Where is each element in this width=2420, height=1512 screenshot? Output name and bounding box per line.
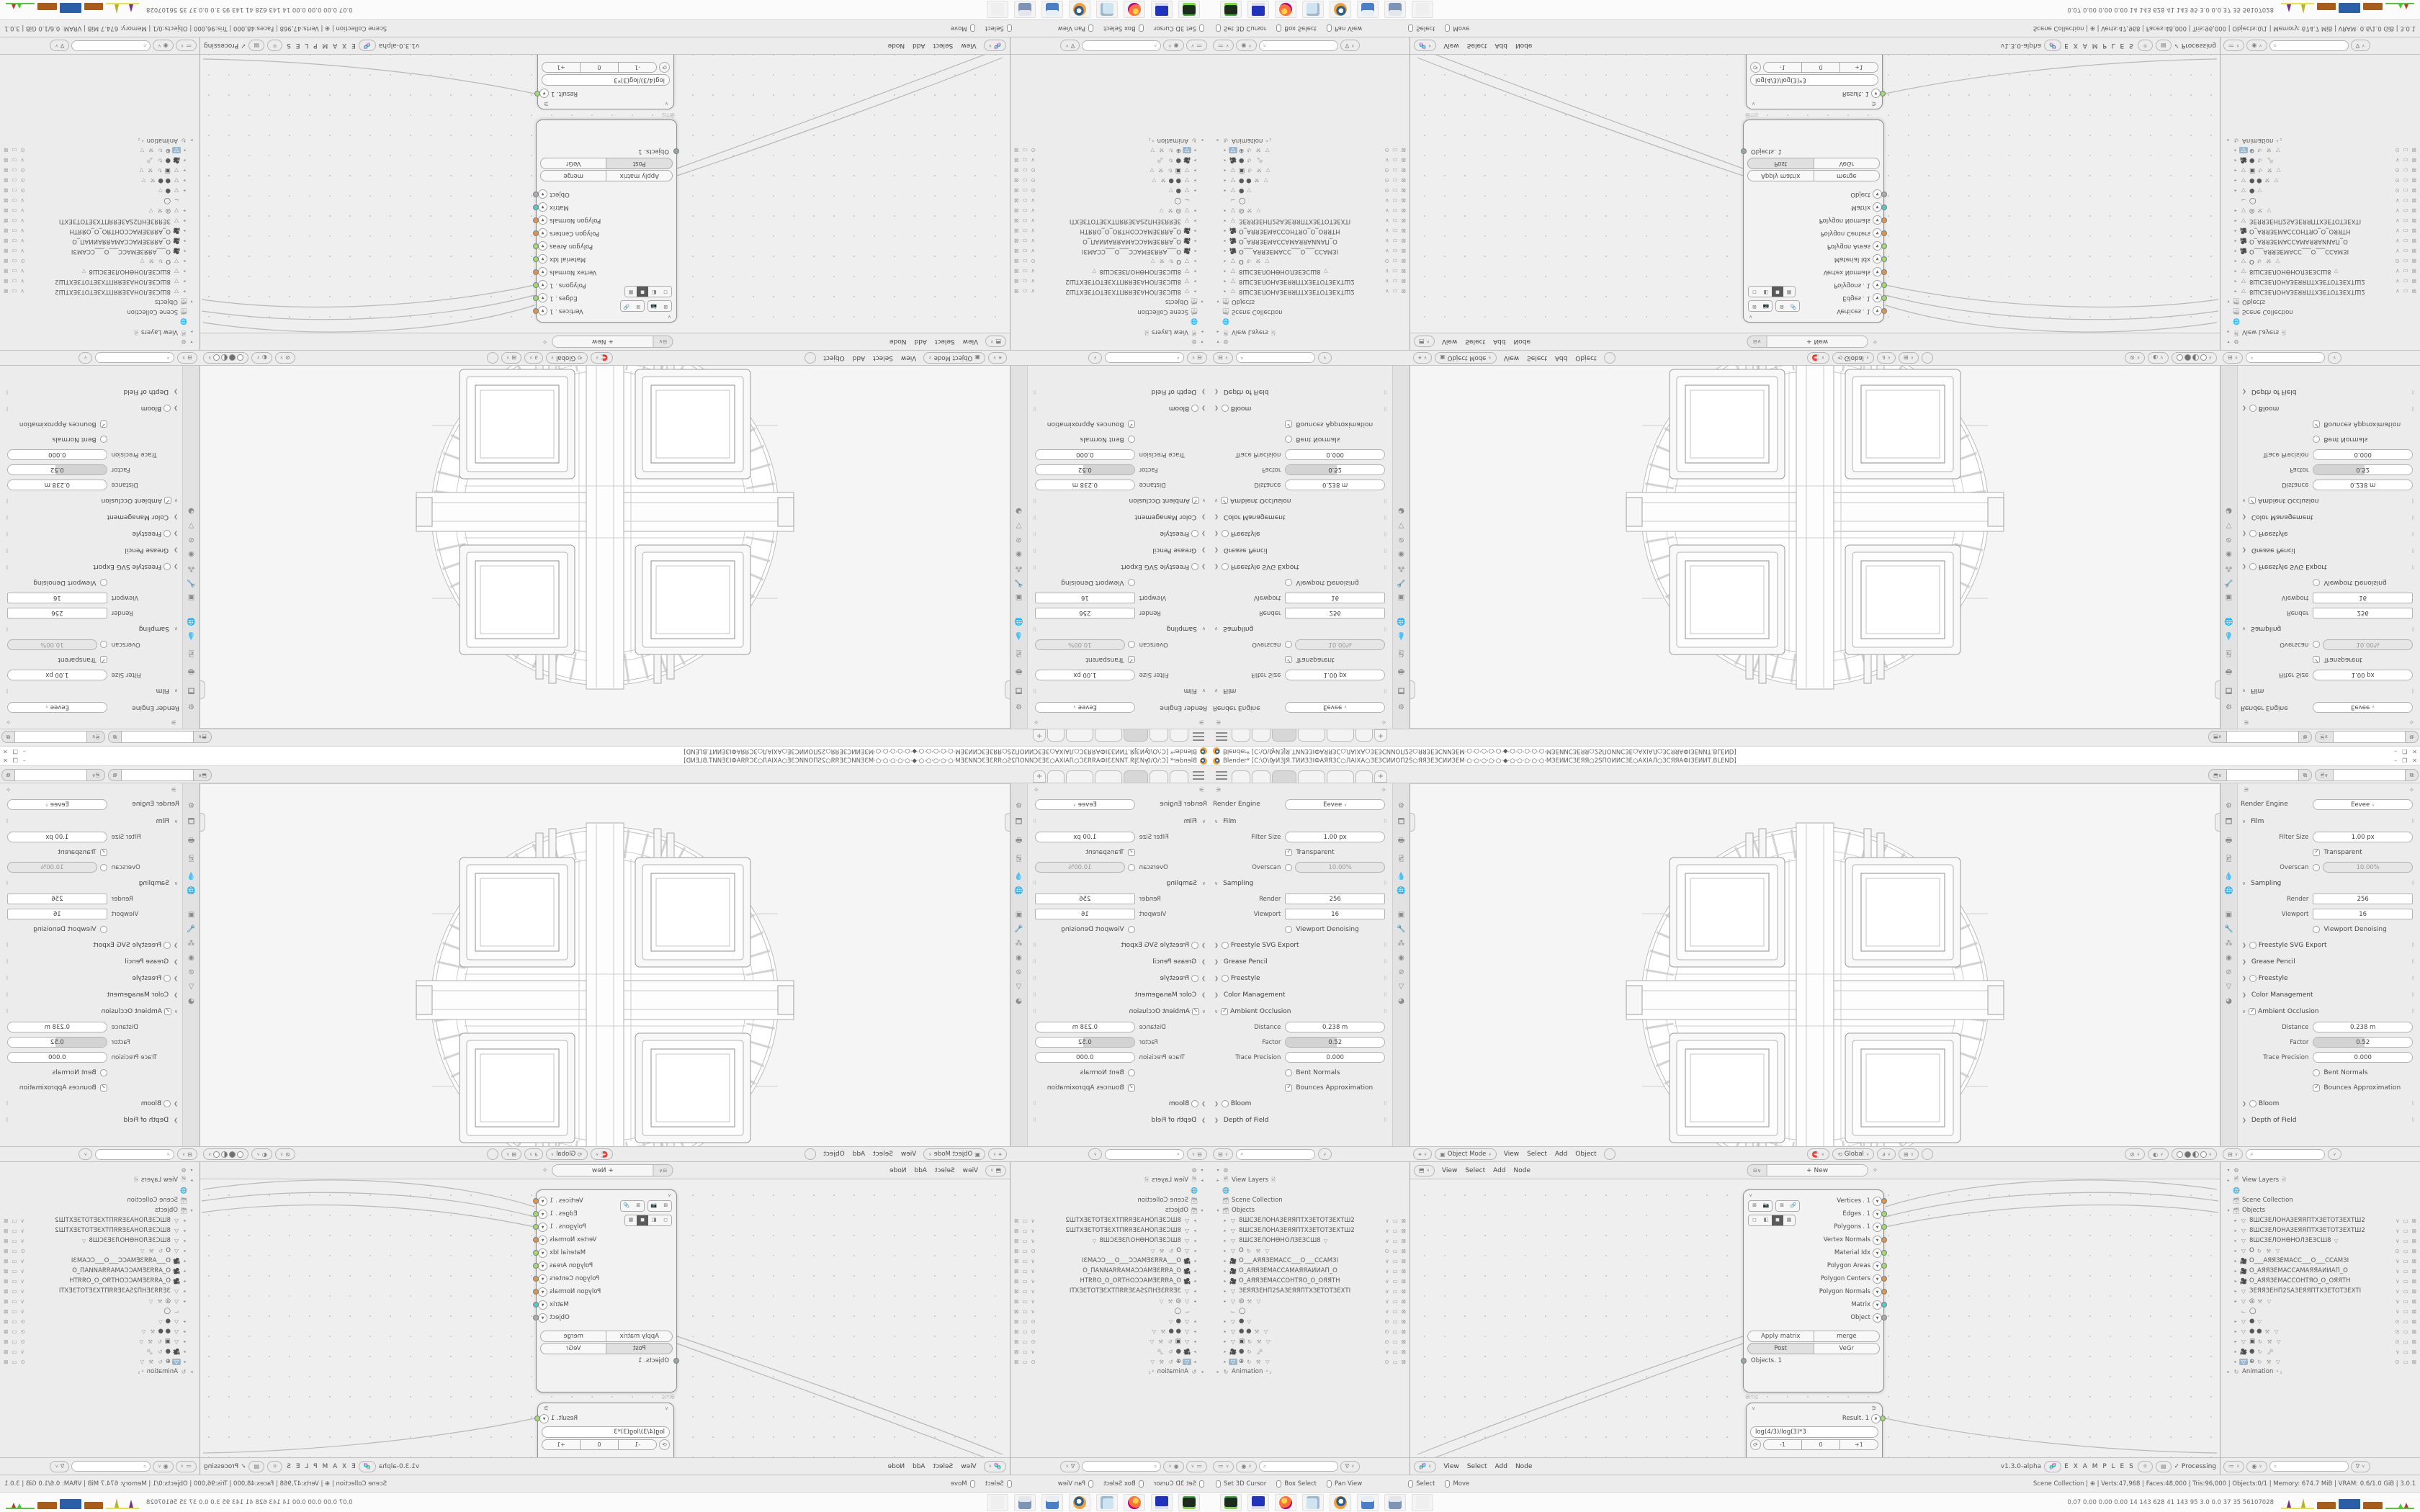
draft-toggle[interactable]: ▤ (248, 40, 264, 52)
outliner-animation-row[interactable]: ▸↻Animation⁴₂ (1, 1367, 195, 1377)
live-update-toggle[interactable]: ⚛ (2138, 40, 2153, 52)
menu-hamburger-icon[interactable] (1216, 771, 1227, 780)
checkbox-bent-normals[interactable]: Bent Normals (2313, 436, 2367, 444)
objects-output-socket[interactable]: Objects. 1 (1744, 1355, 1883, 1367)
outliner-object-row[interactable]: ▸▽ЗЕЯЯЗЕНП2ЅАЗЕЯЯПТХЗЕТОТЗЕХТІ∨▭⊠ (1, 216, 195, 226)
outliner-object-row[interactable]: ▸▽◎⚒ ▽∨▭⊠ (1214, 206, 1408, 216)
funnel-filter-button[interactable]: ∇∨ (2351, 1461, 2370, 1472)
properties-tab-icon[interactable]: ⊘ (2226, 536, 2231, 544)
outliner-object-row[interactable]: ▸▽8ШСЗЕЛОНАЗЕЯЯПТХЗЕТОТЗЕХТШ2∨▭⊠ (1012, 276, 1206, 287)
properties-tab-icon[interactable]: 🗖 (1016, 816, 1023, 829)
id-filter-button[interactable]: ◉∨ (2246, 40, 2267, 52)
node-output-polygon-centers[interactable]: Polygon Centers▼ (537, 1272, 645, 1285)
properties-tab-icon[interactable]: 💧 (1397, 873, 1405, 881)
viewport-3d[interactable] (1410, 783, 2220, 1146)
node-button-post[interactable]: Post (606, 158, 673, 169)
outliner-object-row[interactable]: ▸🎥О_АЯЯЗЕМАССАМАЯЯАИИАП_О∨▭⊠ (1, 1266, 195, 1276)
outliner-object-row[interactable]: ▸▽◎⚒ ▽∨▭⊠ (2225, 206, 2419, 216)
gizmo-toggle[interactable]: ⊞∨ (1899, 1148, 1919, 1160)
outliner-object-row[interactable]: ▸▽⊕↻ ⚒ ▽⊙▭⊠ (1214, 1356, 1408, 1367)
checkbox-transparent[interactable]: Transparent (1085, 657, 1134, 664)
number-node[interactable]: ∨ ⚞ Result. 1 ▼ log(4/3)/log(3)*3 ⟳ -10+… (537, 1403, 674, 1466)
panel-section-ambient-occlusion[interactable]: ∨Ambient Occlusion⠿ (1210, 492, 1392, 509)
node-output-vertices[interactable]: Vertices. 1▼ (537, 1194, 645, 1207)
funnel-filter-button[interactable]: ∇∨ (2351, 40, 2370, 52)
node-output-matrix[interactable]: Matrix▼ (537, 201, 645, 214)
field-overscan[interactable]: 10.00% (7, 639, 97, 650)
output-socket[interactable] (1881, 1224, 1887, 1230)
node-button-vegr[interactable]: VeGr (1814, 158, 1881, 169)
taskbar-app-terminal[interactable] (1178, 1, 1200, 19)
formula-input[interactable]: log(4/3)/log(3)*3 (1750, 1426, 1878, 1438)
outliner-filter-toggle[interactable]: ∨ (1088, 1148, 1101, 1160)
stepper-button-0[interactable]: 0 (580, 62, 618, 73)
number-stepper[interactable]: ⟳ -10+1 (1750, 62, 1878, 73)
properties-tab-icon[interactable]: ▣ (188, 911, 194, 919)
output-socket[interactable] (1881, 1211, 1887, 1217)
outliner-object-row[interactable]: ▸▽8ШСЗЕЛОНАЗЕЯЯПТХЗЕТОТЗЕХТШ2∨▭⊠ (1012, 1225, 1206, 1236)
taskbar-app-notepad[interactable] (1302, 1494, 1324, 1511)
outliner-scene-row[interactable]: ▾🗃Objects (1012, 1205, 1206, 1215)
properties-tab-icon[interactable]: 🔧 (187, 579, 195, 587)
mode-dropdown[interactable]: ▣Object Mode∨ (923, 1148, 985, 1160)
filter-search-input[interactable]: ⌕ (2269, 1461, 2349, 1472)
viewport-sidebar-toggle[interactable] (1005, 680, 1010, 699)
outliner-object-row[interactable]: ▸▽● ●⚒ ▽⊙▭⊠ (1012, 1326, 1206, 1336)
field-factor[interactable]: 0.52 (2313, 464, 2413, 475)
live-update-toggle[interactable]: ⚛ (267, 1461, 282, 1472)
collapse-chevron-icon[interactable]: ∨ (1749, 314, 1752, 320)
viewport-3d[interactable] (200, 366, 1010, 729)
properties-tab-icon[interactable]: ◕ (2226, 507, 2232, 515)
field-overscan[interactable]: 10.00% (1295, 862, 1385, 873)
field-distance[interactable]: 0.238 m (1285, 480, 1385, 490)
properties-nav-tabs[interactable]: ⚙🗖🖶🖻💧🌐▣🔧⁂◉⊘▽◕ (2220, 366, 2238, 729)
number-node[interactable]: ∨ ⚞ Result. 1 ▼ log(4/3)/log(3)*3 ⟳ -10+… (537, 46, 674, 109)
taskbar-app-dosbox[interactable] (1151, 1494, 1173, 1511)
field-distance[interactable]: 0.238 m (7, 480, 107, 490)
view-layer-selector[interactable]: 🖻∨⧉ (1, 731, 105, 743)
outliner-scene-row[interactable]: 🗃Scene Collection (2225, 307, 2419, 317)
output-socket[interactable] (1881, 1276, 1887, 1282)
node-button-vegr[interactable]: VeGr (540, 158, 606, 169)
panel-section-film[interactable]: ∨Film⠿ (1028, 683, 1210, 699)
outliner-filter-toggle[interactable]: ∨ (79, 1148, 91, 1160)
view-layer-selector[interactable]: 🖻∨⧉ (1, 769, 105, 781)
outliner-object-row[interactable]: ▸▽8ШСЗЕЛОНАЗЕЯЯПТХЗЕТОТЗЕХТШ2∨▭⊠ (2225, 287, 2419, 297)
outliner-filter-toggle[interactable]: ∨ (1318, 352, 1331, 364)
properties-tab-icon[interactable]: ▽ (189, 983, 194, 991)
panel-section-ambient-occlusion[interactable]: ∨Ambient Occlusion⠿ (2238, 1003, 2420, 1020)
panel-section-ambient-occlusion[interactable]: ∨Ambient Occlusion⠿ (1028, 1003, 1210, 1020)
outliner-search-input[interactable]: ⌕ (1236, 1149, 1315, 1160)
panel-collapsed-grease-pencil[interactable]: ❯Grease Pencil⠿ (1210, 542, 1392, 559)
viewport-sidebar-toggle[interactable] (200, 680, 205, 699)
properties-tab-icon[interactable]: ⊘ (1016, 536, 1021, 544)
node-button-apply-matrix[interactable]: Apply matrix (1747, 170, 1814, 181)
field-distance[interactable]: 0.238 m (1035, 480, 1135, 490)
objects-in-node[interactable]: ∨ ⊠📷 ⊠🔗 ◻◧◼▦ Vertices. 1▼Edges. 1▼Polygo… (1743, 120, 1884, 323)
outliner-scene-row[interactable]: ▾🗃Objects (1214, 1205, 1408, 1215)
properties-tab-icon[interactable]: 🌐 (2224, 887, 2233, 895)
outliner-object-row[interactable]: ▸▽● ●⚒ ▽⊙▭⊠ (2225, 1326, 2419, 1336)
node-editor-menus[interactable]: ViewSelectAddNode (1439, 1463, 1536, 1470)
outliner-object-row[interactable]: ▸▽◎⚒ ▽∨▭⊠ (1, 1296, 195, 1306)
cycle-button[interactable]: ⟳ (659, 62, 670, 73)
outliner-search-input[interactable]: ⌕ (95, 1149, 174, 1160)
properties-tab-icon[interactable]: 🗖 (2226, 683, 2233, 696)
outliner-filter-toggle[interactable]: ∨ (1318, 1148, 1331, 1160)
add-workspace-button[interactable]: + (1374, 729, 1387, 742)
number-node[interactable]: ∨ ⚞ Result. 1 ▼ log(4/3)/log(3)*3 ⟳ -10+… (1746, 46, 1883, 109)
outliner-object-row[interactable]: ▸▽●▽⊙▭⊠ (1012, 1316, 1206, 1326)
node-button-post[interactable]: Post (606, 1343, 673, 1354)
outliner-object-row[interactable]: ▸▽O↻ ⚒ ▽⊙▭⊠ (1, 256, 195, 266)
properties-tab-icon[interactable]: ⊘ (1016, 968, 1021, 976)
workspace-tab-1[interactable] (1170, 729, 1188, 742)
objects-in-node[interactable]: ∨ ⊠📷 ⊠🔗 ◻◧◼▦ Vertices. 1▼Edges. 1▼Polygo… (536, 1189, 677, 1392)
funnel-filter-button[interactable]: ∇∨ (1060, 1461, 1080, 1472)
panel-section-ambient-occlusion[interactable]: ∨Ambient Occlusion⠿ (0, 492, 182, 509)
new-tree-button[interactable]: + New (1767, 1164, 1868, 1176)
outliner-object-row[interactable]: ▸▽O↻ ⚒ ▽⊙▭⊠ (1012, 1246, 1206, 1256)
outliner-object-row[interactable]: ▸▽8ШСЗЕЛОНѲНОЛЗЕЗСШ8▽∨▭⊠ (1214, 1236, 1408, 1246)
outliner-animation-row[interactable]: ▸↻Animation⁴₂ (1012, 1367, 1206, 1377)
panel-collapsed-grease-pencil[interactable]: ❯Grease Pencil⠿ (0, 542, 182, 559)
filter-search-input[interactable]: ⌕ (1259, 1461, 1338, 1472)
outliner-scene-row[interactable]: ▸🖻View Layers🖻 (1, 1175, 195, 1185)
field-factor[interactable]: 0.52 (7, 1037, 107, 1048)
node-output-polygon-normals[interactable]: Polygon Normals▼ (537, 214, 645, 227)
node-output-material-idx[interactable]: Material Idx▼ (1775, 1246, 1883, 1259)
outliner-object-row[interactable]: ▸▽◎⚒ ▽∨▭⊠ (1214, 1296, 1408, 1306)
taskbar-app-calculator[interactable] (1357, 1, 1379, 19)
panel-section-sampling[interactable]: ∨Sampling⠿ (1210, 621, 1392, 637)
outliner-object-row[interactable]: ▸▽●▽⊙▭⊠ (2225, 186, 2419, 196)
outliner-scene-row[interactable]: 🌐 (1012, 317, 1206, 327)
panel-section-film[interactable]: ∨Film⠿ (0, 683, 182, 699)
outliner-scene-row[interactable]: 🌐 (1012, 1185, 1206, 1195)
panel-section-sampling[interactable]: ∨Sampling⠿ (0, 621, 182, 637)
properties-tab-icon[interactable]: ◉ (1016, 550, 1022, 558)
output-socket[interactable] (1881, 1289, 1887, 1295)
node-output-polygon-areas[interactable]: Polygon Areas▼ (537, 240, 645, 253)
outliner-scene-row[interactable]: 🗃Scene Collection (1012, 307, 1206, 317)
outliner-scene-row[interactable]: ▾⚙ (2225, 1165, 2419, 1175)
node-output-vertices[interactable]: Vertices. 1▼ (1775, 1194, 1883, 1207)
node-button-merge[interactable]: merge (540, 170, 606, 181)
panel-collapsed-bloom[interactable]: ❯Bloom⠿ (0, 400, 182, 417)
output-socket[interactable] (1881, 1263, 1887, 1269)
taskbar-app-blender[interactable] (1330, 1, 1351, 19)
properties-tab-icon[interactable]: 🔧 (2224, 579, 2233, 587)
outliner-object-row[interactable]: ▸▽ЗЕЯЯЗЕНП2ЅАЗЕЯЯПТХЗЕТОТЗЕХТІ∨▭⊠ (1012, 216, 1206, 226)
checkbox-bounces-approximation[interactable]: Bounces Approximation (1285, 1084, 1373, 1092)
outliner-object-row[interactable]: ▸▽8ШСЗЕЛОНАЗЕЯЯПТХЗЕТОТЗЕХТШ2∨▭⊠ (1012, 1215, 1206, 1225)
editor-type-button[interactable]: ⬒∨ (1414, 336, 1435, 348)
outliner-search-input[interactable]: ⌕ (1236, 353, 1315, 364)
node-editor[interactable]: ⬒∨ ViewSelectAddNode ⊟∨ + New ✧ (1410, 37, 2220, 350)
outliner-object-row[interactable]: ▸🎥●↻ 🗝∨▭⊠ (2225, 156, 2419, 166)
output-socket[interactable] (1881, 308, 1887, 314)
outliner-object-row[interactable]: ▸🎥О___АЯЯЗЕМАСС___О___ССАМЗІ∨▭⊠ (1214, 1256, 1408, 1266)
checkbox-viewport-denoising[interactable]: Viewport Denoising (33, 926, 107, 933)
properties-tab-icon[interactable]: 🌐 (187, 617, 195, 625)
output-socket[interactable] (1881, 192, 1887, 197)
funnel-filter-button[interactable]: ∇∨ (1340, 40, 1360, 52)
node-output-polygons[interactable]: Polygons. 1▼ (1775, 1220, 1883, 1233)
workspace-tab-4[interactable] (1298, 729, 1325, 742)
properties-tab-icon[interactable]: 🗖 (1016, 683, 1023, 696)
workspace-tab-5[interactable] (1327, 770, 1354, 783)
checkbox-bounces-approximation[interactable]: Bounces Approximation (19, 1084, 107, 1092)
field-trace-precision[interactable]: 0.000 (7, 1052, 107, 1063)
id-filter-button[interactable]: ◉∨ (1163, 1461, 1183, 1472)
outliner-object-row[interactable]: ⌙◯∨▭⊠ (2225, 1306, 2419, 1316)
collapse-chevron-icon[interactable]: ∨ (1752, 1405, 1755, 1411)
properties-tab-icon[interactable]: ⁂ (1016, 940, 1023, 948)
node-editor-menus[interactable]: ViewSelectAddNode (885, 1167, 982, 1174)
checkbox-viewport-denoising[interactable]: Viewport Denoising (1061, 926, 1134, 933)
stepper-button-+1[interactable]: +1 (542, 1439, 580, 1450)
node-tree-selector[interactable]: ⊟∨ + New ✧ (542, 1164, 673, 1176)
properties-tab-icon[interactable]: ◕ (1398, 997, 1404, 1005)
outliner-scene-row[interactable]: 🌐 (1214, 1185, 1408, 1195)
output-socket[interactable] (1881, 295, 1887, 301)
stepper-button-+1[interactable]: +1 (542, 62, 580, 73)
outliner-scene-row[interactable]: 🌐 (1, 317, 195, 327)
outliner-scene-row[interactable]: 🌐 (2225, 1185, 2419, 1195)
node-output-polygon-areas[interactable]: Polygon Areas▼ (1775, 240, 1883, 253)
outliner-object-row[interactable]: ▸🎥О___АЯЯЗЕМАСС___О___ССАМЗІ∨▭⊠ (1, 246, 195, 256)
field-distance[interactable]: 0.238 m (2313, 480, 2413, 490)
outliner-scene-row[interactable]: ▸🖻View Layers🖻 (1012, 1175, 1206, 1185)
field-render[interactable]: 256 (7, 608, 107, 618)
properties-tab-icon[interactable]: 🔧 (2224, 925, 2233, 933)
field-filter-size[interactable]: 1.00 px (7, 670, 107, 680)
outliner-scene-row[interactable]: ▾🗃Objects (1012, 297, 1206, 307)
taskbar-app-calculator[interactable] (1357, 1494, 1379, 1511)
taskbar-app-ghost[interactable] (1412, 1, 1433, 19)
draft-toggle[interactable]: ▤ (2156, 40, 2172, 52)
checkbox-bent-normals[interactable]: Bent Normals (2313, 1069, 2367, 1076)
stepper-button-0[interactable]: 0 (1802, 1439, 1840, 1450)
outliner-object-row[interactable]: ▸▽◎⚒ ▽∨▭⊠ (2225, 1296, 2419, 1306)
xray-toggle[interactable]: ◐∨ (2148, 352, 2168, 364)
outliner-object-row[interactable]: ▸🎥●↻ 🗝∨▭⊠ (2225, 1346, 2419, 1356)
editor-type-button[interactable]: ⚹∨ (1413, 352, 1432, 364)
checkbox-bent-normals[interactable]: Bent Normals (1285, 1069, 1340, 1076)
properties-tab-icon[interactable]: ◕ (1398, 507, 1404, 515)
checkbox-viewport-denoising[interactable]: Viewport Denoising (1285, 580, 1358, 587)
panel-collapsed-depth-of-field[interactable]: ❯Depth of Field⠿ (1210, 384, 1392, 400)
outliner-object-row[interactable]: ▸🎥●↻ 🗝∨▭⊠ (1012, 1346, 1206, 1356)
outliner-object-row[interactable]: ▸▽⊕↻ ⚒ ▽⊙▭⊠ (1214, 145, 1408, 156)
outliner-object-row[interactable]: ▸🎥О_АЯЯЗЕМАССАМАЯЯАИИАП_О∨▭⊠ (1214, 236, 1408, 246)
node-editor[interactable]: ⬒∨ ViewSelectAddNode ⊟∨ + New ✧ (1410, 1162, 2220, 1475)
output-socket[interactable] (1881, 1315, 1887, 1320)
checkbox-transparent[interactable]: Transparent (2313, 657, 2362, 664)
collapse-chevron-icon[interactable]: ∨ (665, 1405, 668, 1411)
taskbar-app-notepad[interactable] (1096, 1494, 1118, 1511)
outliner-object-row[interactable]: ⌙◯∨▭⊠ (1012, 196, 1206, 206)
add-workspace-button[interactable]: + (1033, 770, 1046, 783)
number-stepper[interactable]: ⟳ -10+1 (542, 1439, 670, 1450)
checkbox-bounces-approximation[interactable]: Bounces Approximation (2313, 1084, 2401, 1092)
panel-section-film[interactable]: ∨Film⠿ (1210, 683, 1392, 699)
outliner-scene-row[interactable]: 🌐 (1, 1185, 195, 1195)
id-name-field[interactable] (2227, 731, 2299, 743)
outliner-scene-row[interactable]: ▾⚙ (1, 1165, 195, 1175)
outliner-object-row[interactable]: ▸🎥О_АЯЯЗЕМАССОНТЯО_О_ОЯЯТН∨▭⊠ (2225, 1276, 2419, 1286)
node-editor-menus[interactable]: ViewSelectAddNode (885, 338, 982, 346)
transform-orientation-dropdown[interactable]: ⟲Global∨ (546, 1148, 588, 1160)
outliner-object-row[interactable]: ▸▽●▽⊙▭⊠ (1012, 186, 1206, 196)
properties-tab-icon[interactable]: ⊘ (1398, 536, 1404, 544)
options-button[interactable] (1922, 1148, 1933, 1160)
panel-section-ambient-occlusion[interactable]: ∨Ambient Occlusion⠿ (1028, 492, 1210, 509)
display-mode-button[interactable]: ≔∨ (1213, 1461, 1234, 1472)
minimize-button[interactable]: – (23, 748, 26, 755)
outliner-object-row[interactable]: ▸🎥О_АЯЯЗЕМАССОНТЯО_О_ОЯЯТН∨▭⊠ (1214, 1276, 1408, 1286)
outliner-object-row[interactable]: ▸▽8ШСЗЕЛОНАЗЕЯЯПТХЗЕТОТЗЕХТШ2∨▭⊠ (2225, 276, 2419, 287)
panel-collapsed-bloom[interactable]: ❯Bloom⠿ (1210, 1095, 1392, 1112)
output-socket[interactable] (1881, 1237, 1887, 1243)
objects-output-socket[interactable]: Objects. 1 (537, 1355, 676, 1367)
taskbar-app-dosbox[interactable] (1151, 1, 1173, 19)
add-workspace-button[interactable]: + (1374, 770, 1387, 783)
outliner-object-row[interactable]: ▸▽8ШСЗЕЛОНАЗЕЯЯПТХЗЕТОТЗЕХТШ2∨▭⊠ (2225, 1225, 2419, 1236)
id-name-field[interactable] (121, 769, 193, 781)
collapse-chevron-icon[interactable]: ∨ (1749, 1192, 1752, 1198)
outliner-object-row[interactable]: ⌙◯∨▭⊠ (1, 1306, 195, 1316)
panel-collapsed-freestyle[interactable]: ❯Freestyle⠿ (0, 970, 182, 986)
checkbox-bent-normals[interactable]: Bent Normals (1080, 436, 1135, 444)
node-button-apply-matrix[interactable]: Apply matrix (606, 1331, 673, 1342)
properties-tab-icon[interactable]: ⁂ (188, 564, 195, 572)
workspace-tab-4[interactable] (1298, 770, 1325, 783)
properties-tab-icon[interactable]: ◕ (188, 507, 194, 515)
outliner-object-row[interactable]: ▸▽⊕↻ ⚒ ▽⊙▭⊠ (2225, 145, 2419, 156)
socket-menu-button[interactable]: ▼ (539, 1414, 549, 1423)
workspace-tab-5[interactable] (1066, 729, 1093, 742)
outliner-scene-row[interactable]: ▾⚙ (1012, 1165, 1206, 1175)
xray-toggle[interactable]: ◐∨ (2148, 1148, 2168, 1160)
properties-tab-icon[interactable]: ⚙ (1016, 802, 1022, 810)
viewport-sidebar-toggle[interactable] (2215, 680, 2220, 699)
outliner-object-row[interactable]: ▸▽O↻ ⚒ ▽⊙▭⊠ (2225, 256, 2419, 266)
node-output-material-idx[interactable]: Material Idx▼ (537, 1246, 645, 1259)
node-output-vertices[interactable]: Vertices. 1▼ (1775, 305, 1883, 318)
filter-search-input[interactable]: ⌕ (71, 40, 151, 51)
panel-collapsed-freestyle-svg-export[interactable]: ❯Freestyle SVG Export⠿ (1210, 937, 1392, 953)
workspace-tab-6[interactable] (1047, 729, 1065, 742)
field-filter-size[interactable]: 1.00 px (1035, 670, 1135, 680)
editor-type-button[interactable]: 🧬∨ (1414, 1461, 1436, 1472)
field-filter-size[interactable]: 1.00 px (1035, 832, 1135, 842)
panel-section-sampling[interactable]: ∨Sampling⠿ (2238, 875, 2420, 891)
outliner-object-row[interactable]: ▸🎥О___АЯЯЗЕМАСС___О___ССАМЗІ∨▭⊠ (1, 1256, 195, 1266)
outliner-animation-row[interactable]: ▸↻Animation⁴₂ (2225, 1367, 2419, 1377)
output-socket[interactable] (1881, 282, 1887, 288)
number-stepper[interactable]: ⟳ -10+1 (1750, 1439, 1878, 1450)
properties-tab-icon[interactable]: 🌐 (1014, 617, 1023, 625)
maximize-button[interactable]: ❐ (13, 748, 18, 755)
outliner-object-row[interactable]: ▸🎥О_АЯЯЗЕМАССАМАЯЯАИИАП_О∨▭⊠ (1214, 1266, 1408, 1276)
outliner-scene-row[interactable]: ▾⚙ (1214, 337, 1408, 347)
field-factor[interactable]: 0.52 (7, 464, 107, 475)
render-engine-dropdown[interactable]: Eevee ∨ (7, 799, 107, 810)
panel-collapsed-color-management[interactable]: ❯Color Management⠿ (1210, 509, 1392, 526)
panel-collapsed-depth-of-field[interactable]: ❯Depth of Field⠿ (2238, 384, 2420, 400)
properties-tab-icon[interactable]: 🔧 (1397, 579, 1405, 587)
properties-tab-icon[interactable]: 🌐 (2224, 617, 2233, 625)
panel-section-ambient-occlusion[interactable]: ∨Ambient Occlusion⠿ (2238, 492, 2420, 509)
properties-tab-icon[interactable]: 🖶 (2226, 835, 2232, 847)
node-button-merge[interactable]: merge (540, 1331, 606, 1342)
outliner-object-row[interactable]: ▸▽ЗЕЯЯЗЕНП2ЅАЗЕЯЯПТХЗЕТОТЗЕХТІ∨▭⊠ (1012, 1286, 1206, 1296)
display-mode-button[interactable]: ≔∨ (1186, 40, 1207, 52)
new-tree-button[interactable]: + New (552, 336, 653, 348)
checkbox-transparent[interactable]: Transparent (58, 849, 107, 856)
properties-tab-icon[interactable]: 🖶 (1016, 835, 1022, 847)
checkbox-bounces-approximation[interactable]: Bounces Approximation (2313, 421, 2401, 428)
panel-collapsed-bloom[interactable]: ❯Bloom⠿ (2238, 1095, 2420, 1112)
field-trace-precision[interactable]: 0.000 (1285, 1052, 1385, 1063)
outliner-object-row[interactable]: ▸▽8ШСЗЕЛОНАЗЕЯЯПТХЗЕТОТЗЕХТШ2∨▭⊠ (1214, 1215, 1408, 1225)
window-titlebar[interactable]: Blender* [C:\О\ѸИЗЈЯ.ТИИЗЗІФАЯЯЗС○ЛАІХА○… (1210, 756, 2420, 766)
outliner-object-row[interactable]: ▸▽ЗЕЯЯЗЕНП2ЅАЗЕЯЯПТХЗЕТОТЗЕХТІ∨▭⊠ (2225, 216, 2419, 226)
checkbox-bounces-approximation[interactable]: Bounces Approximation (1047, 1084, 1135, 1092)
field-render[interactable]: 256 (1035, 894, 1135, 904)
properties-tab-icon[interactable]: ▣ (188, 593, 194, 601)
xray-toggle[interactable]: ◐∨ (251, 352, 272, 364)
properties-tab-icon[interactable]: ▽ (2226, 983, 2232, 991)
stepper-button--1[interactable]: -1 (618, 62, 657, 73)
outliner-object-row[interactable]: ⌙◯∨▭⊠ (1214, 1306, 1408, 1316)
properties-nav-tabs[interactable]: ⚙🗖🖶🖻💧🌐▣🔧⁂◉⊘▽◕ (1392, 366, 1410, 729)
outliner-object-row[interactable]: ▸▽8ШСЗЕЛОНАЗЕЯЯПТХЗЕТОТЗЕХТШ2∨▭⊠ (2225, 1215, 2419, 1225)
outliner-scene-row[interactable]: ▸🖻View Layers🖻 (1, 327, 195, 337)
panel-collapsed-grease-pencil[interactable]: ❯Grease Pencil⠿ (1028, 953, 1210, 970)
field-render[interactable]: 256 (2313, 608, 2413, 618)
node-button-merge[interactable]: merge (1814, 170, 1881, 181)
properties-nav-tabs[interactable]: ⚙🗖🖶🖻💧🌐▣🔧⁂◉⊘▽◕ (182, 366, 200, 729)
field-overscan[interactable]: 10.00% (7, 862, 97, 873)
render-engine-dropdown[interactable]: Eevee ∨ (2313, 799, 2413, 810)
properties-tab-icon[interactable]: 🖻 (188, 854, 194, 866)
result-output[interactable]: Result. 1 ▼ (538, 87, 673, 100)
annotate-tool-button[interactable] (805, 1148, 816, 1160)
properties-tab-icon[interactable]: ◉ (1398, 550, 1404, 558)
panel-collapsed-grease-pencil[interactable]: ❯Grease Pencil⠿ (1028, 542, 1210, 559)
minimize-button[interactable]: – (2394, 757, 2397, 764)
filter-search-input[interactable]: ⌕ (2269, 40, 2349, 51)
panel-collapsed-depth-of-field[interactable]: ❯Depth of Field⠿ (1210, 1112, 1392, 1128)
editor-type-button[interactable]: ⚹∨ (1413, 1148, 1432, 1160)
node-editor-menus[interactable]: ViewSelectAddNode (1438, 1167, 1535, 1174)
funnel-filter-button[interactable]: ∇∨ (1340, 1461, 1360, 1472)
properties-tab-icon[interactable]: ▣ (1398, 593, 1404, 601)
stepper-button-0[interactable]: 0 (1802, 62, 1840, 73)
node-output-edges[interactable]: Edges. 1▼ (1775, 292, 1883, 305)
taskbar-app-terminal[interactable] (1220, 1, 1242, 19)
properties-tab-icon[interactable]: 🖶 (1398, 665, 1404, 677)
outliner-object-row[interactable]: ▸▽8ШСЗЕЛОНѲНОЛЗЕЗСШ8▽∨▭⊠ (2225, 1236, 2419, 1246)
gizmo-toggle[interactable]: ⊞∨ (501, 352, 521, 364)
properties-tab-icon[interactable]: 💧 (2224, 873, 2233, 881)
taskbar-app-terminal[interactable] (1178, 1494, 1200, 1511)
